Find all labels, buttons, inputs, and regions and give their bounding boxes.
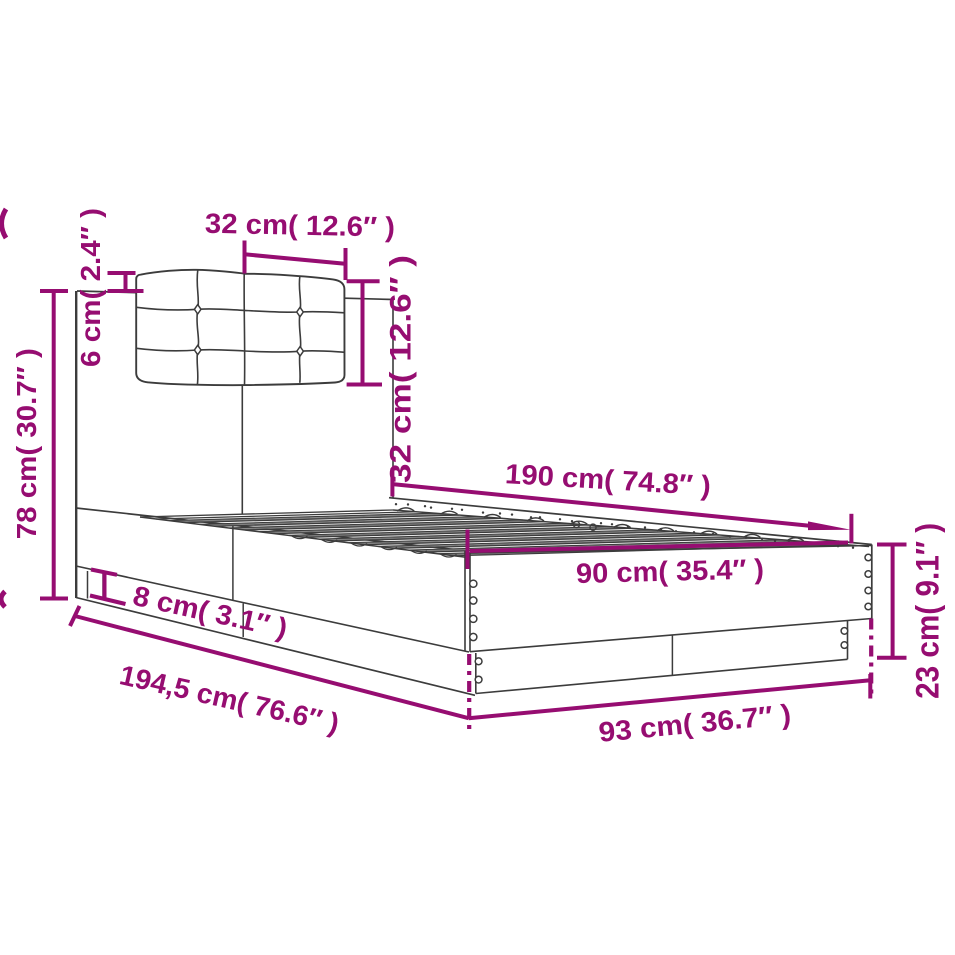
svg-text:23 cm( 9.1″ ): 23 cm( 9.1″ ) bbox=[909, 523, 945, 699]
svg-text:190 cm( 74.8″ ): 190 cm( 74.8″ ) bbox=[504, 458, 711, 501]
svg-text:194,5 cm( 76.6″ ): 194,5 cm( 76.6″ ) bbox=[117, 659, 342, 739]
svg-text:93 cm( 36.7″ ): 93 cm( 36.7″ ) bbox=[597, 699, 792, 748]
svg-text:8 cm( 3.1″ ): 8 cm( 3.1″ ) bbox=[130, 580, 290, 644]
svg-text:6 cm( 2.4″ ): 6 cm( 2.4″ ) bbox=[75, 208, 106, 367]
svg-text:78 cm( 30.7″ ): 78 cm( 30.7″ ) bbox=[11, 348, 42, 539]
svg-text:32 cm( 12.6″ ): 32 cm( 12.6″ ) bbox=[205, 208, 396, 243]
svg-text:32 cm( 12.6″ ): 32 cm( 12.6″ ) bbox=[384, 255, 417, 483]
svg-text:90 cm( 35.4″ ): 90 cm( 35.4″ ) bbox=[576, 553, 765, 589]
